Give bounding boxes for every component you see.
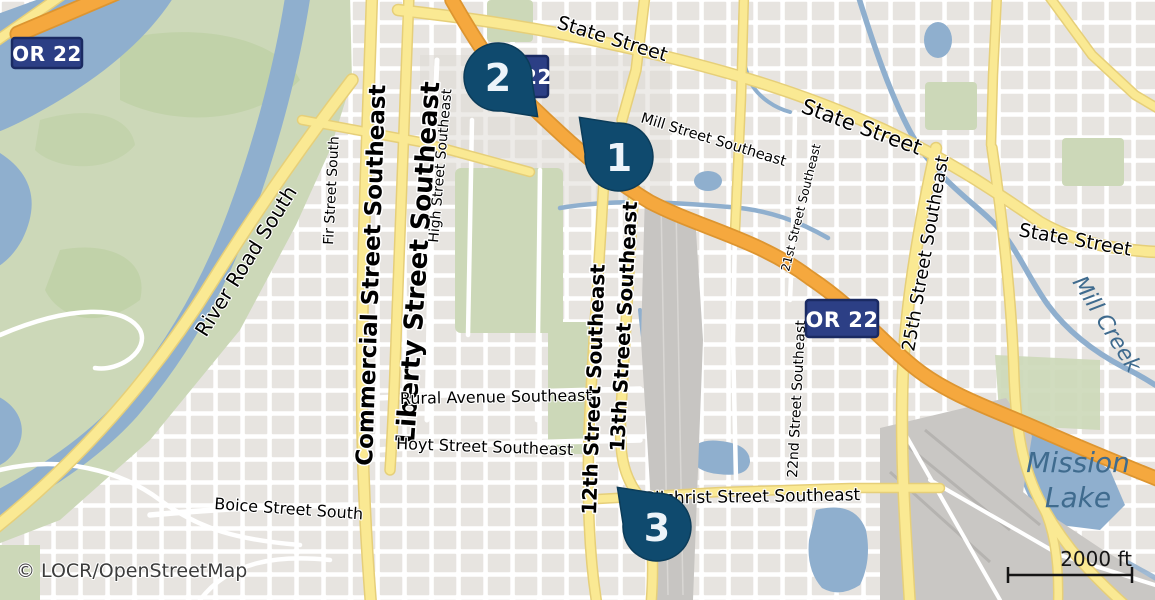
- svg-text:OR 22: OR 22: [12, 42, 82, 66]
- label-mission-lake-2: Lake: [1045, 481, 1111, 514]
- map-svg: State Street State Street State Street M…: [0, 0, 1155, 600]
- label-mission-lake-1: Mission: [1026, 446, 1130, 479]
- marker-3-number: 3: [644, 506, 670, 550]
- marker-1-number: 1: [606, 136, 632, 180]
- map-attribution: © LOCR/OpenStreetMap: [16, 560, 247, 582]
- svg-text:OR 22: OR 22: [805, 308, 878, 332]
- or22-shield-northwest: OR 22: [12, 38, 82, 68]
- label-rural-avenue: Rural Avenue Southeast: [400, 386, 592, 408]
- marker-2-number: 2: [485, 56, 511, 100]
- or22-shield-middle: OR 22: [805, 300, 878, 337]
- map-canvas[interactable]: State Street State Street State Street M…: [0, 0, 1155, 600]
- scale-bar-label: 2000 ft: [1060, 547, 1132, 571]
